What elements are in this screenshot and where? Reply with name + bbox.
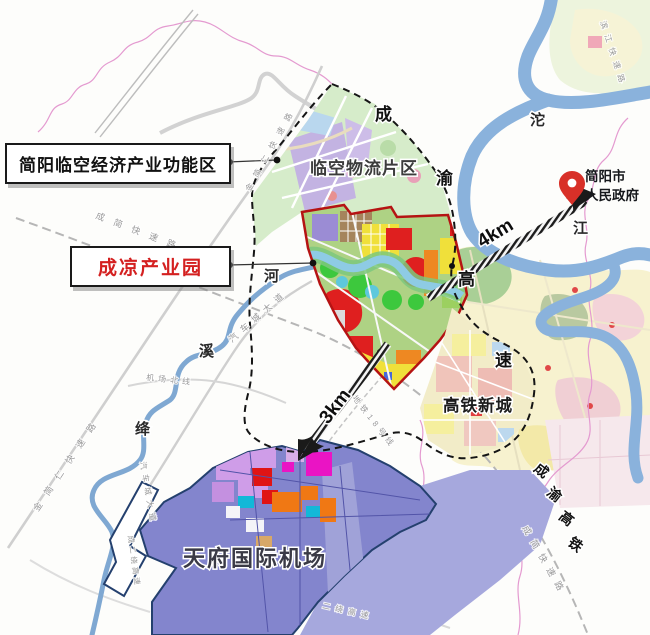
park-annotation-label: 成凉产业园 (98, 253, 203, 280)
zone-annotation-box: 简阳临空经济产业功能区 (5, 143, 231, 184)
jiangxi-char-2: 溪 (199, 342, 215, 360)
road-label-airport-north: 机场北线 (146, 372, 195, 387)
government-label-line2: 人民政府 (585, 187, 639, 206)
zone-annotation-label: 简阳临空经济产业功能区 (19, 151, 217, 176)
government-label: 简阳市 人民政府 (585, 168, 639, 206)
label-hsr-town: 高铁新城 (443, 395, 513, 415)
expwy-char-2: 渝 (436, 168, 454, 188)
label-logistics-area: 临空物流片区 (310, 158, 418, 178)
expwy-char-3: 高 (458, 269, 475, 289)
expwy-char-4: 速 (495, 350, 512, 370)
hsr-char-3: 高 (556, 508, 577, 529)
jiangxi-char-1: 河 (264, 267, 279, 285)
planning-map: 临空物流片区 高铁新城 天府国际机场 成 渝 高 速 成 渝 高 铁 沱 江 河… (0, 0, 650, 635)
railway-line (95, 10, 198, 137)
road-label-chengjian-se: 成简快速路 (520, 524, 570, 599)
tuojiang-char-2: 江 (573, 219, 588, 237)
expwy-char-1: 成 (375, 104, 392, 124)
hsr-char-4: 铁 (565, 534, 586, 555)
road-label-metro18: 地铁18号线 (350, 393, 398, 450)
map-canvas: 临空物流片区 高铁新城 天府国际机场 成 渝 高 速 成 渝 高 铁 沱 江 河… (0, 0, 650, 635)
jiangxi-char-3: 绛 (135, 420, 151, 438)
tuojiang-char-1: 沱 (530, 111, 545, 129)
label-airport: 天府国际机场 (183, 546, 327, 571)
government-label-line1: 简阳市 (585, 168, 639, 187)
park-annotation-box: 成凉产业园 (70, 246, 231, 287)
